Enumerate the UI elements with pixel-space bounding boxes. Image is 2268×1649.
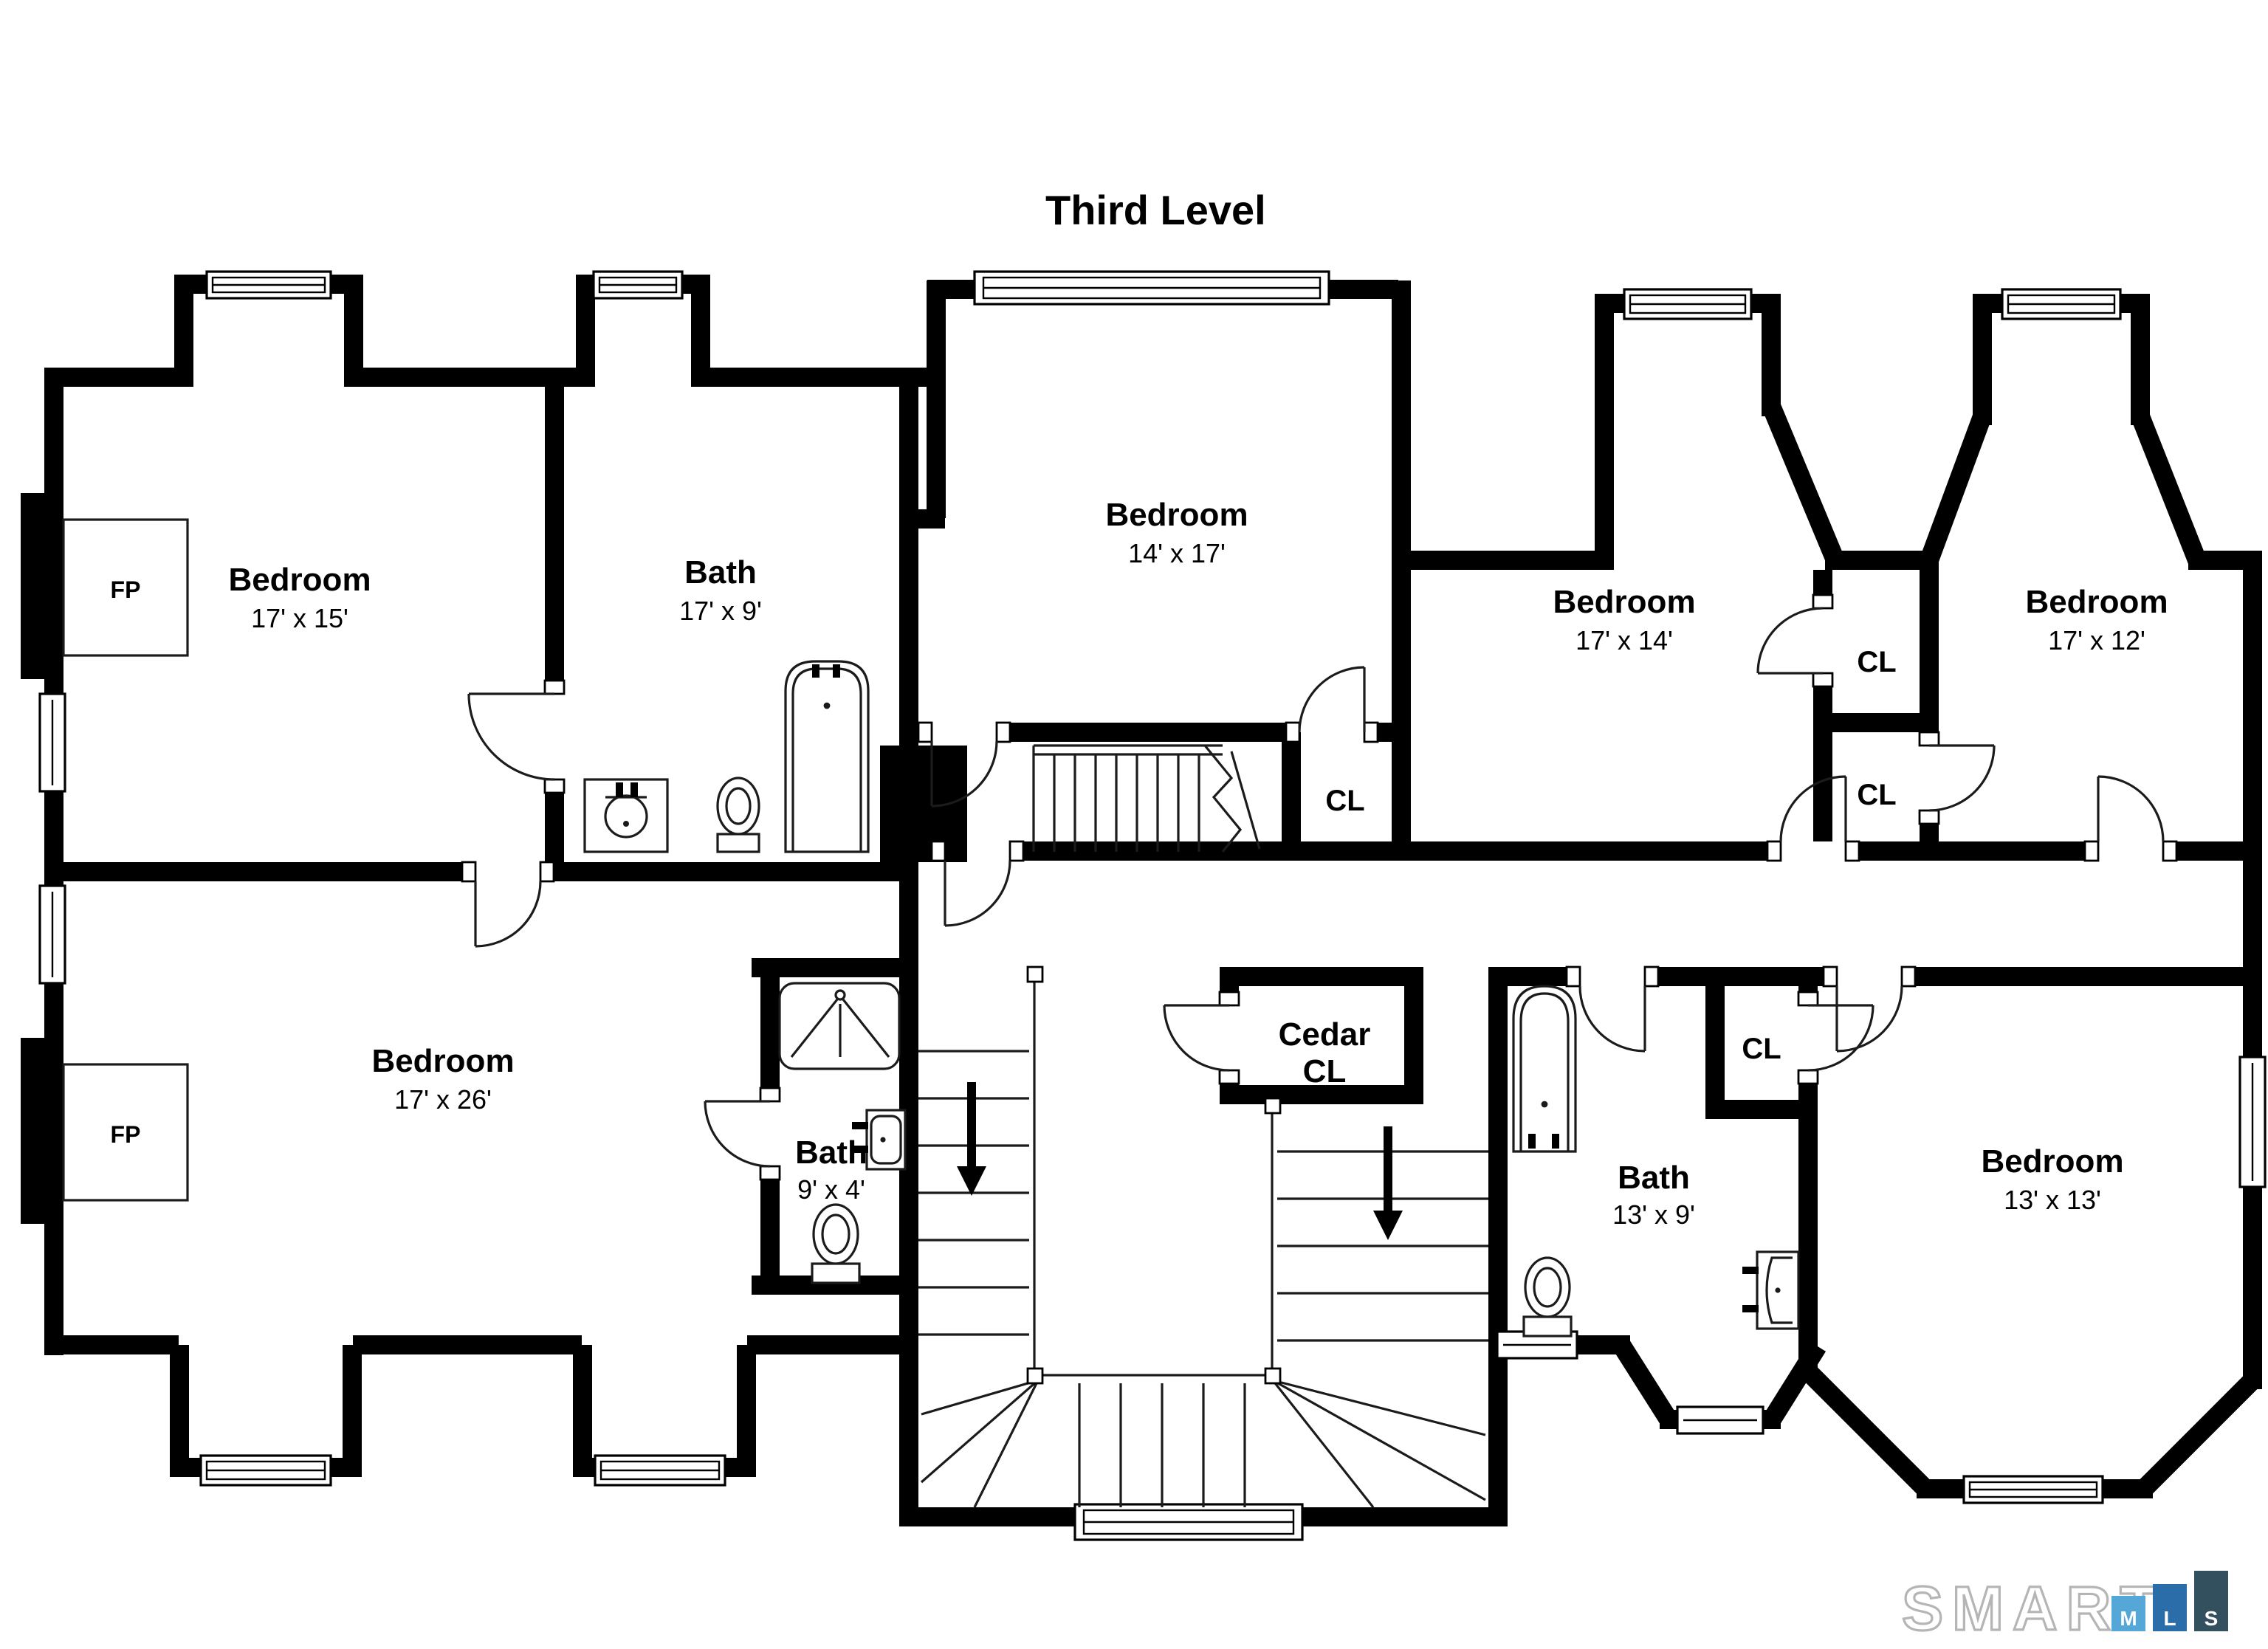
room-label-bedroom-tr1: Bedroom 17' x 14' <box>1553 584 1695 655</box>
walls <box>21 275 2262 1526</box>
door-arc <box>1164 1005 1229 1070</box>
door-arc <box>1837 986 1902 1051</box>
fireplace-label: FP <box>111 1121 141 1148</box>
svg-text:13' x 13': 13' x 13' <box>2004 1185 2101 1215</box>
svg-text:Bedroom: Bedroom <box>1105 497 1248 533</box>
window <box>2002 289 2120 319</box>
window <box>1677 1407 1763 1433</box>
room-label-bedroom-br: Bedroom 13' x 13' <box>1981 1143 2123 1215</box>
svg-text:Bedroom: Bedroom <box>228 562 371 598</box>
bath-top-fixtures <box>585 661 868 852</box>
door-arc <box>1808 1005 1873 1070</box>
svg-text:Bedroom: Bedroom <box>371 1043 514 1079</box>
window <box>201 1456 331 1485</box>
svg-text:Bedroom: Bedroom <box>1553 584 1695 620</box>
svg-text:17' x 26': 17' x 26' <box>394 1084 492 1115</box>
shower <box>780 983 899 1069</box>
window <box>1624 289 1751 319</box>
door-arc <box>2098 777 2163 841</box>
door-arc <box>1758 608 1823 673</box>
window <box>594 272 682 298</box>
floorplan-page: FP FP <box>0 0 2268 1649</box>
stairs-attic <box>1034 746 1260 852</box>
floorplan-svg: FP FP <box>0 0 2268 1649</box>
bath-small-fixtures <box>780 983 905 1283</box>
room-label-bedroom-bl: Bedroom 17' x 26' <box>371 1043 514 1115</box>
door-arc <box>1929 746 1994 810</box>
window <box>595 1456 725 1485</box>
room-label-bath-small: Bath 9' x 4' <box>795 1135 867 1205</box>
fireplace-label: FP <box>111 576 141 603</box>
room-label-bath-br: Bath 13' x 9' <box>1612 1160 1695 1230</box>
sink <box>1742 1252 1798 1329</box>
window <box>975 272 1329 304</box>
svg-text:Bath: Bath <box>1618 1160 1690 1196</box>
page-title: Third Level <box>1045 187 1266 233</box>
door-arc <box>469 694 554 779</box>
door-arc <box>705 1101 770 1166</box>
svg-text:Cedar: Cedar <box>1279 1016 1371 1053</box>
bathtub <box>786 661 868 852</box>
closet-label: CL <box>1325 785 1364 817</box>
svg-text:9' x 4': 9' x 4' <box>797 1174 865 1205</box>
window <box>40 886 65 983</box>
svg-text:Bedroom: Bedroom <box>1981 1143 2123 1180</box>
svg-text:13' x 9': 13' x 9' <box>1612 1199 1695 1230</box>
svg-text:CL: CL <box>1303 1053 1347 1089</box>
room-label-bedroom-tc: Bedroom 14' x 17' <box>1105 497 1248 568</box>
svg-text:17' x 12': 17' x 12' <box>2048 625 2145 655</box>
sink <box>585 779 667 852</box>
smartmls-logo: SMART M L S <box>1902 1571 2228 1643</box>
svg-text:Bath: Bath <box>684 554 757 591</box>
room-label-cedar-closet: Cedar CL <box>1279 1016 1371 1089</box>
fireplace-bottom: FP <box>63 1064 188 1200</box>
logo-letter-m: M <box>2120 1607 2137 1630</box>
door-arc <box>945 861 1010 926</box>
door-arc <box>1580 986 1645 1051</box>
logo-letter-s: S <box>2205 1607 2219 1630</box>
window <box>207 272 331 298</box>
toilet <box>718 778 759 852</box>
stairs-main <box>918 967 1488 1507</box>
svg-text:17' x 14': 17' x 14' <box>1575 625 1673 655</box>
window <box>1964 1476 2103 1503</box>
window <box>1075 1504 1302 1540</box>
svg-text:14' x 17': 14' x 17' <box>1128 538 1226 568</box>
fireplace-top: FP <box>63 520 188 655</box>
door-arc <box>1299 667 1364 732</box>
window <box>40 694 65 791</box>
toilet <box>812 1205 859 1283</box>
svg-text:Bath: Bath <box>795 1135 867 1171</box>
closet-label: CL <box>1857 779 1896 811</box>
toilet <box>1524 1258 1571 1336</box>
arrow-down-icon <box>1373 1126 1403 1240</box>
logo-letter-l: L <box>2163 1607 2176 1630</box>
room-label-bedroom-tl: Bedroom 17' x 15' <box>228 562 371 633</box>
svg-text:17' x 9': 17' x 9' <box>679 596 762 626</box>
closet-label: CL <box>1742 1033 1781 1065</box>
svg-text:Bedroom: Bedroom <box>2025 584 2168 620</box>
bathtub <box>1513 986 1575 1151</box>
svg-text:17' x 15': 17' x 15' <box>251 603 348 633</box>
room-label-bedroom-tr2: Bedroom 17' x 12' <box>2025 584 2168 655</box>
room-label-bath-top: Bath 17' x 9' <box>679 554 762 626</box>
closet-label: CL <box>1857 646 1896 678</box>
window <box>2240 1057 2265 1187</box>
door-arc <box>475 881 540 946</box>
